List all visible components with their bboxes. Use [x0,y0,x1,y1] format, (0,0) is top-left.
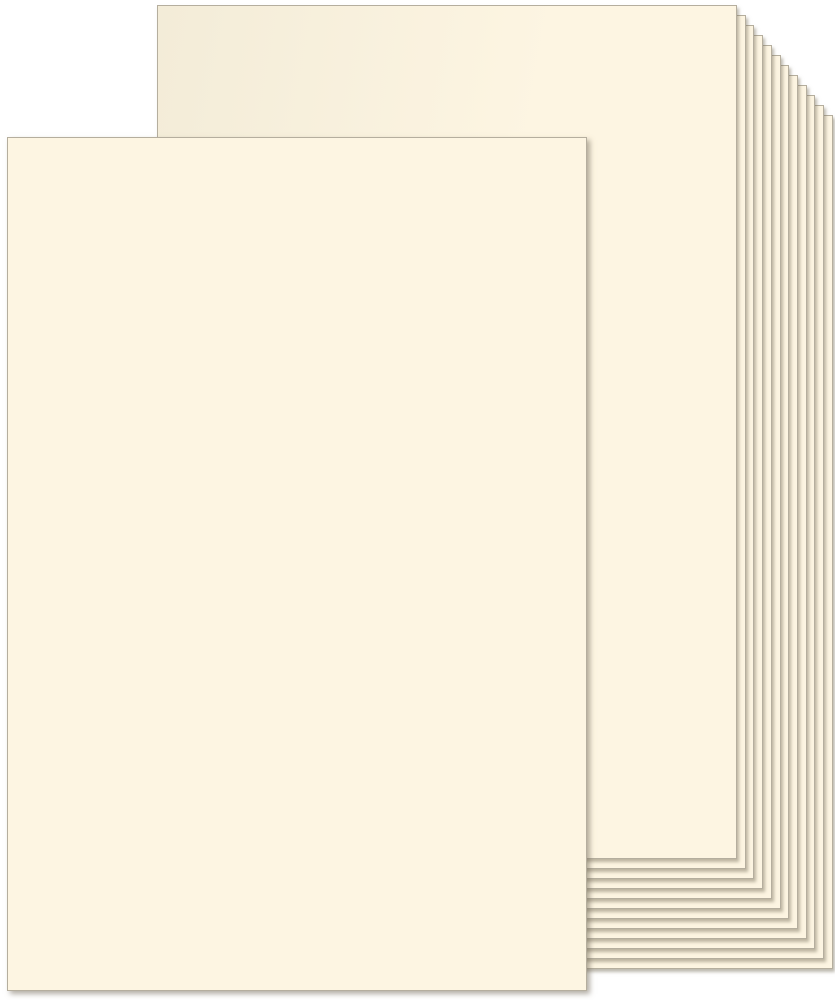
front-paper-sheet [7,137,587,991]
paper-stack-scene [0,0,835,1000]
